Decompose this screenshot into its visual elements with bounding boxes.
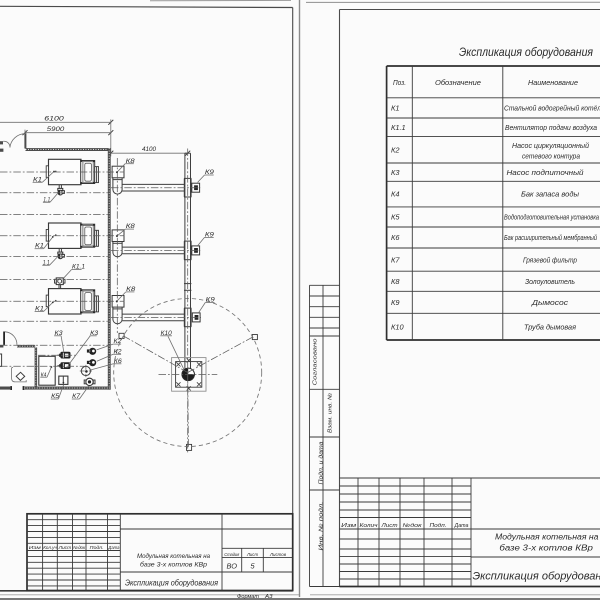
svg-text:Экспликация оборудования: Экспликация оборудования (459, 46, 593, 59)
svg-text:Насос подпиточный: Насос подпиточный (507, 168, 584, 177)
svg-text:Золоуловитель: Золоуловитель (525, 277, 575, 286)
svg-text:Изм: Изм (29, 545, 41, 550)
svg-text:Лист: Лист (380, 523, 398, 529)
svg-text:К10: К10 (391, 322, 404, 331)
svg-text:К5: К5 (391, 213, 400, 222)
svg-text:Подп.: Подп. (430, 523, 447, 529)
svg-text:Колич: Колич (360, 523, 378, 529)
svg-text:Лист: Лист (246, 552, 258, 557)
svg-text:Дата: Дата (107, 545, 119, 550)
svg-text:К3: К3 (391, 168, 400, 177)
svg-text:К1: К1 (391, 104, 399, 113)
svg-text:К1.1: К1.1 (391, 123, 406, 132)
svg-text:базе 3-х котлов КВр: базе 3-х котлов КВр (140, 562, 208, 568)
svg-text:Труба дымовая: Труба дымовая (524, 322, 576, 331)
svg-text:К8: К8 (391, 277, 400, 286)
svg-text:Изм: Изм (341, 523, 356, 529)
svg-text:Модульная котельная на: Модульная котельная на (495, 532, 599, 542)
svg-text:К9: К9 (391, 298, 399, 307)
svg-text:4100: 4100 (142, 146, 156, 153)
svg-text:Модульная котельная на: Модульная котельная на (137, 554, 211, 560)
svg-text:№док: №док (73, 545, 86, 550)
svg-text:Вентилятор подачи воздуха: Вентилятор подачи воздуха (505, 123, 597, 132)
svg-text:Лист: Лист (58, 545, 72, 550)
svg-text:ВО: ВО (227, 562, 238, 571)
svg-text:К6: К6 (391, 233, 400, 242)
svg-text:К2: К2 (391, 146, 399, 155)
svg-text:№док: №док (403, 523, 423, 529)
svg-text:Грязевой фильтр: Грязевой фильтр (523, 255, 577, 264)
svg-text:Водоподготовительная установка: Водоподготовительная установка (504, 214, 599, 222)
svg-text:Подп.: Подп. (90, 545, 104, 550)
svg-text:Стальной водогрейный котёл: Стальной водогрейный котёл (504, 104, 600, 113)
svg-text:сетевого контура: сетевого контура (522, 151, 580, 160)
svg-text:Инв. № подл.: Инв. № подл. (319, 502, 325, 551)
svg-text:Бак расширительный мембранный: Бак расширительный мембранный (504, 234, 597, 242)
svg-text:базе 3-х котлов КВр: базе 3-х котлов КВр (499, 542, 593, 552)
svg-text:Стадия: Стадия (224, 552, 239, 557)
svg-text:Согласовано: Согласовано (313, 339, 319, 386)
svg-text:Дата: Дата (454, 523, 469, 529)
svg-text:Экспликация оборудования: Экспликация оборудования (473, 571, 600, 583)
svg-text:Листов: Листов (269, 552, 287, 557)
svg-text:Поз.: Поз. (393, 78, 406, 87)
svg-text:А3: А3 (264, 594, 273, 600)
svg-text:Наименование: Наименование (528, 78, 578, 87)
svg-text:Подп. и дата: Подп. и дата (319, 442, 325, 485)
svg-text:Экспликация оборудования: Экспликация оборудования (125, 578, 219, 587)
svg-text:5900: 5900 (47, 126, 65, 133)
svg-text:К7: К7 (391, 255, 400, 264)
svg-text:Бак запаса воды: Бак запаса воды (521, 190, 580, 199)
svg-text:Обозначение: Обозначение (435, 78, 481, 87)
svg-text:Насос циркуляционный: Насос циркуляционный (512, 141, 589, 150)
svg-text:Кол.уч: Кол.уч (43, 545, 57, 550)
svg-text:Взам. инв. №: Взам. инв. № (328, 393, 334, 433)
svg-text:Дымосос: Дымосос (531, 298, 568, 307)
svg-text:К4: К4 (391, 190, 399, 199)
svg-text:Формат: Формат (237, 594, 260, 600)
svg-text:6100: 6100 (44, 115, 64, 122)
